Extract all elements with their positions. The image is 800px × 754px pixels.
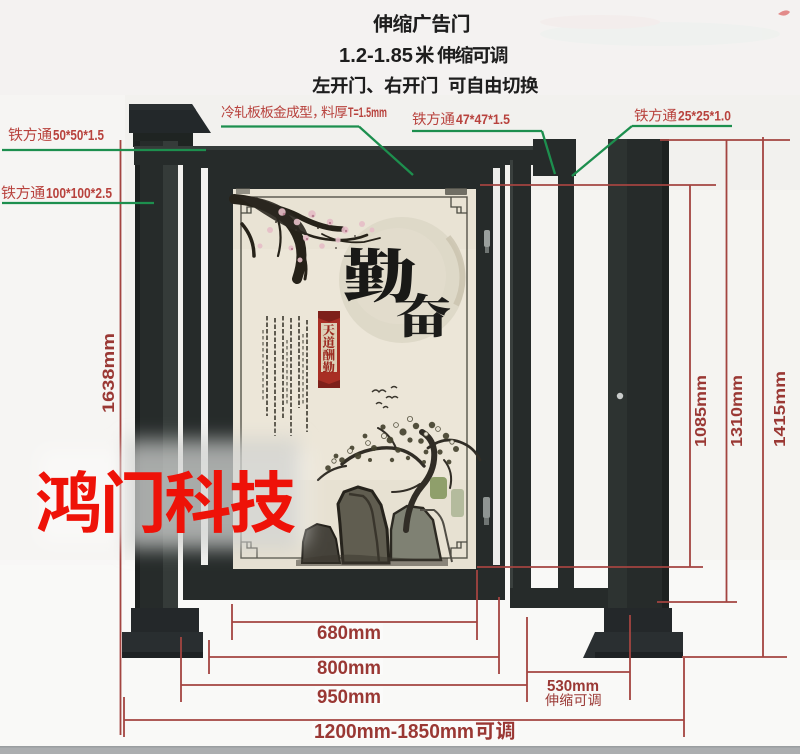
svg-text:100*100*2.5: 100*100*2.5 [46,186,112,202]
svg-text:530mm: 530mm [547,678,599,695]
svg-text:1310mm: 1310mm [729,375,746,447]
svg-text:47*47*1.5: 47*47*1.5 [456,111,510,127]
svg-text:T=1.5mm: T=1.5mm [348,105,387,120]
svg-text:1085mm: 1085mm [693,375,710,447]
svg-text:1415mm: 1415mm [772,371,789,447]
svg-text:50*50*1.5: 50*50*1.5 [53,128,104,144]
svg-text:1638mm: 1638mm [99,333,118,413]
svg-text:1.2-1.85: 1.2-1.85 [339,45,413,67]
svg-text:25*25*1.0: 25*25*1.0 [678,108,731,124]
svg-text:800mm: 800mm [317,658,381,679]
svg-text:680mm: 680mm [317,623,381,644]
svg-text:1200mm-1850mm: 1200mm-1850mm [314,721,474,743]
svg-text:950mm: 950mm [317,687,381,708]
